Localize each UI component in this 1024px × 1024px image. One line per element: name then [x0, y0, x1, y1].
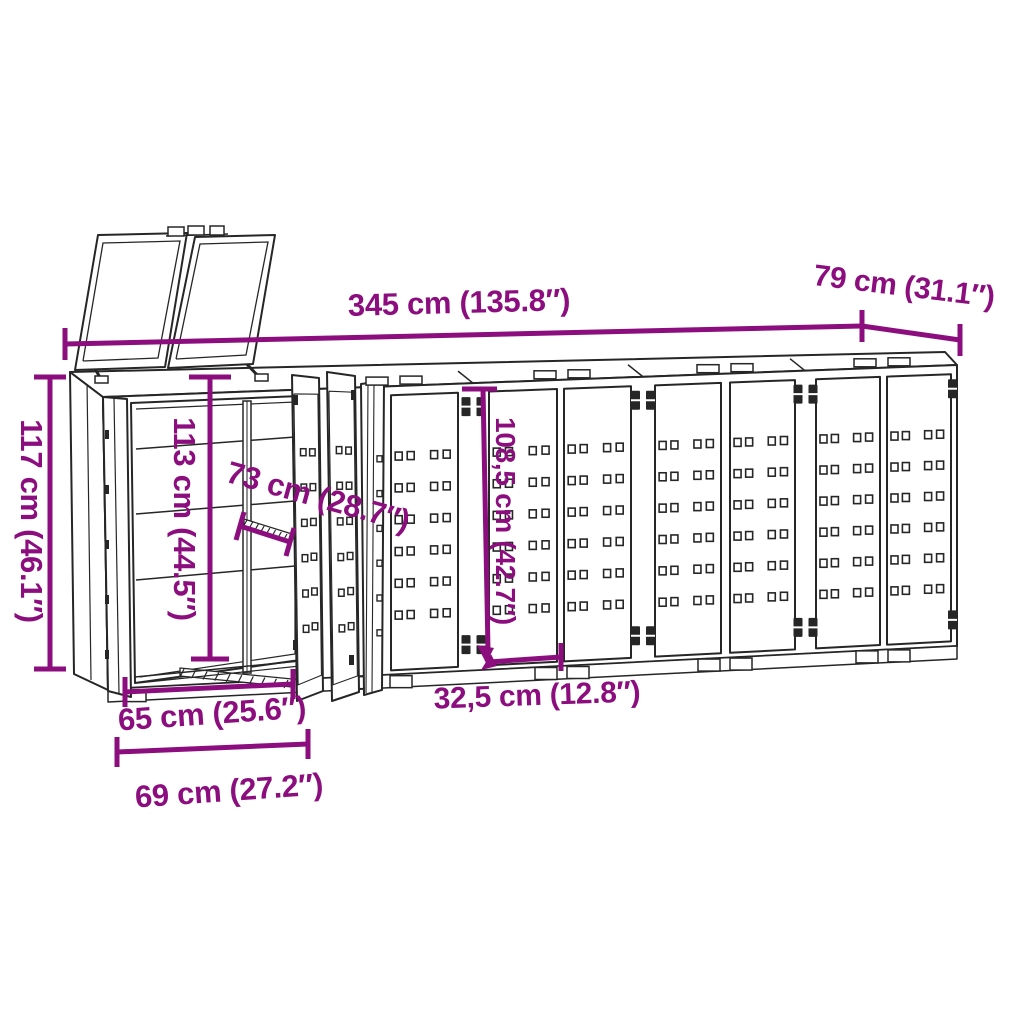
dim-label-overall-height: 117 cm (46.1″)	[13, 419, 49, 623]
product-dimension-diagram: 345 cm (135.8″) 79 cm (31.1″) 117 cm (46…	[0, 0, 1024, 1024]
dim-label-door-half-width: 32,5 cm (12.8″)	[433, 675, 641, 716]
dim-label-overall-width: 345 cm (135.8″)	[347, 282, 570, 324]
bin1-open-interior	[131, 396, 300, 688]
dim-label-inner-height: 113 cm (44.5″)	[166, 417, 202, 621]
dim-label-door-height: 108,5 cm (42.7″)	[489, 417, 521, 625]
open-lid	[75, 226, 275, 383]
